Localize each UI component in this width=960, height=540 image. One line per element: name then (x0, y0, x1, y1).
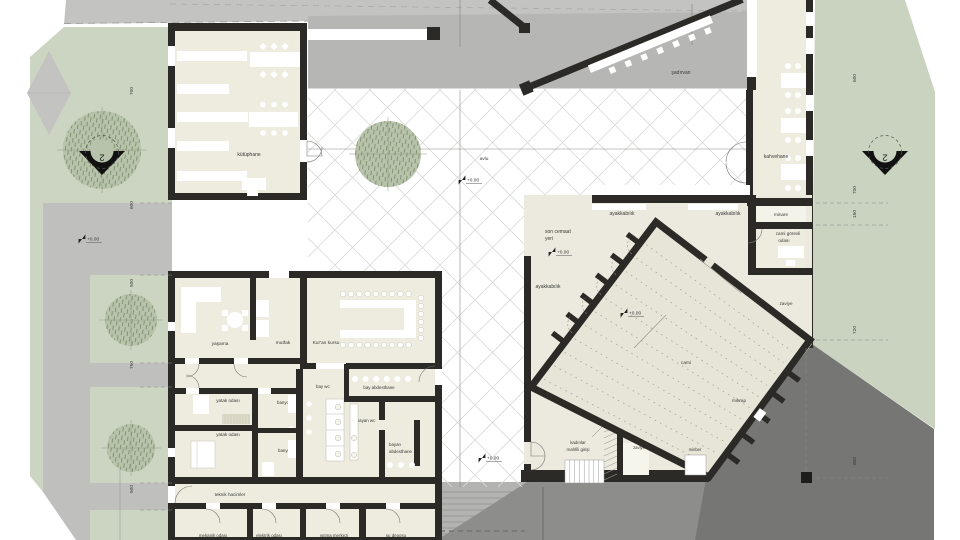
svg-text:ayakkabılık: ayakkabılık (715, 211, 741, 217)
svg-text:cami: cami (681, 360, 691, 366)
svg-text:yeri: yeri (545, 236, 553, 242)
svg-text:banyo: banyo (277, 400, 290, 405)
svg-text:+0.00: +0.00 (557, 250, 569, 256)
svg-text:2: 2 (99, 152, 104, 163)
svg-text:zaviye: zaviye (779, 301, 792, 306)
svg-text:yatak odası: yatak odası (216, 398, 240, 403)
svg-text:700: 700 (129, 87, 135, 95)
svg-text:bayan wc: bayan wc (357, 418, 376, 423)
svg-text:yaşama: yaşama (212, 342, 229, 347)
svg-text:750: 750 (129, 361, 135, 369)
svg-text:kahvehane: kahvehane (764, 154, 789, 160)
svg-text:mahfili girişi: mahfili girişi (567, 447, 590, 452)
svg-text:minber: minber (689, 447, 702, 452)
svg-text:700: 700 (852, 186, 858, 194)
svg-text:720: 720 (852, 326, 858, 334)
svg-text:600: 600 (129, 201, 135, 209)
svg-text:abdesthane: abdesthane (389, 449, 413, 454)
svg-text:+0.00: +0.00 (629, 311, 641, 317)
svg-text:kadınlar: kadınlar (570, 440, 586, 445)
svg-text:+0.00: +0.00 (487, 456, 499, 462)
svg-text:cami görevli: cami görevli (776, 231, 801, 236)
svg-text:avlu: avlu (480, 156, 489, 162)
svg-text:mekanik odası: mekanik odası (199, 533, 227, 538)
svg-text:teknik hacimler: teknik hacimler (215, 492, 246, 497)
svg-text:ayakkabılık: ayakkabılık (609, 211, 635, 217)
svg-text:bayan: bayan (389, 442, 402, 447)
svg-text:son cemaat: son cemaat (545, 229, 571, 235)
svg-text:150: 150 (852, 210, 858, 218)
svg-text:+0.00: +0.00 (467, 178, 479, 184)
svg-text:800: 800 (852, 457, 858, 465)
svg-text:500: 500 (129, 279, 135, 287)
svg-text:şadırvan: şadırvan (671, 70, 690, 76)
svg-text:elektrik odası: elektrik odası (256, 533, 282, 538)
svg-text:kütüphane: kütüphane (237, 152, 261, 158)
svg-text:su deposu: su deposu (386, 533, 407, 538)
svg-text:odası: odası (778, 238, 789, 243)
svg-text:ısıtma merkezi: ısıtma merkezi (320, 533, 349, 538)
svg-text:500: 500 (129, 485, 135, 493)
svg-text:600: 600 (852, 74, 858, 82)
svg-text:minare: minare (774, 212, 788, 217)
svg-text:bay wc: bay wc (316, 384, 330, 389)
svg-text:2: 2 (882, 152, 887, 163)
svg-text:mihrap: mihrap (732, 398, 746, 403)
svg-text:mutfak: mutfak (276, 340, 291, 346)
svg-text:Kur'an kursu: Kur'an kursu (313, 340, 340, 346)
svg-text:+0.00: +0.00 (87, 237, 99, 243)
svg-text:yatak odası: yatak odası (216, 432, 240, 437)
svg-text:ayakkabılık: ayakkabılık (535, 284, 561, 290)
svg-text:bay abdesthane: bay abdesthane (363, 385, 395, 390)
